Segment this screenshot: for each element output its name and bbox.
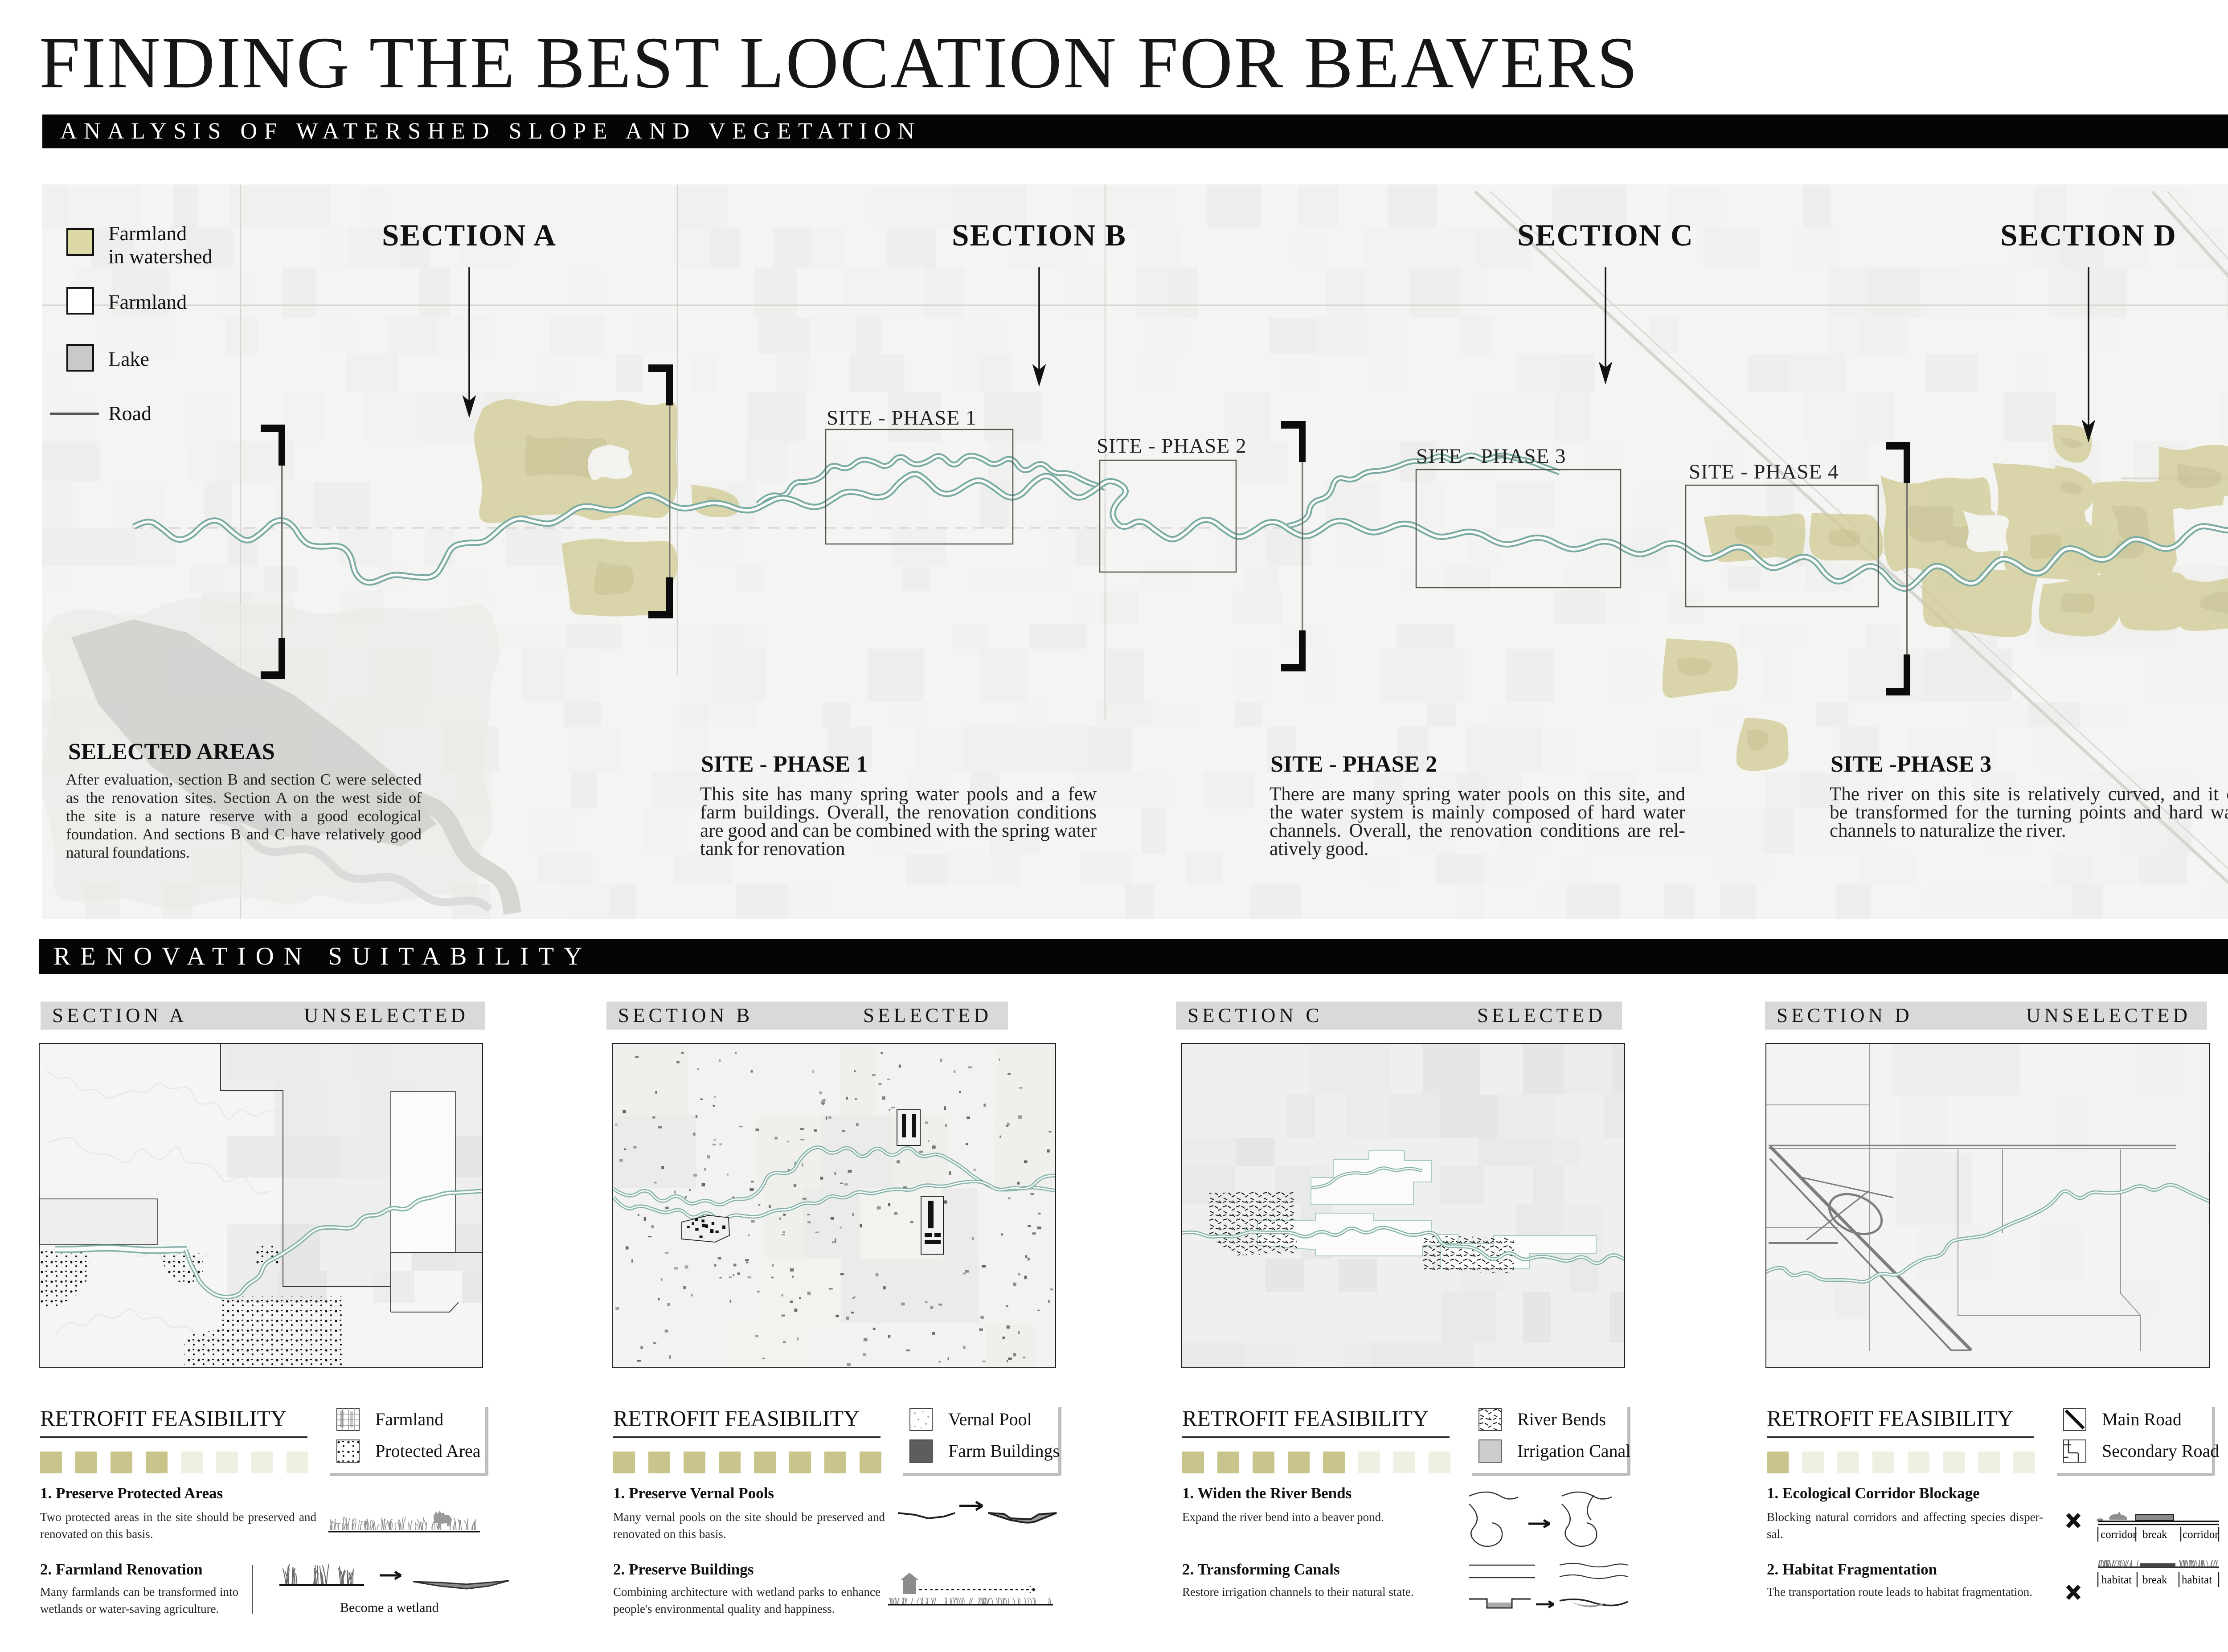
svg-text:corridor: corridor <box>2101 1529 2137 1541</box>
svg-text:corridor: corridor <box>2183 1529 2219 1541</box>
svg-text:habitat: habitat <box>2182 1574 2212 1586</box>
svg-text:break: break <box>2142 1574 2167 1586</box>
svg-text:habitat: habitat <box>2101 1574 2132 1586</box>
svg-text:break: break <box>2142 1529 2167 1541</box>
